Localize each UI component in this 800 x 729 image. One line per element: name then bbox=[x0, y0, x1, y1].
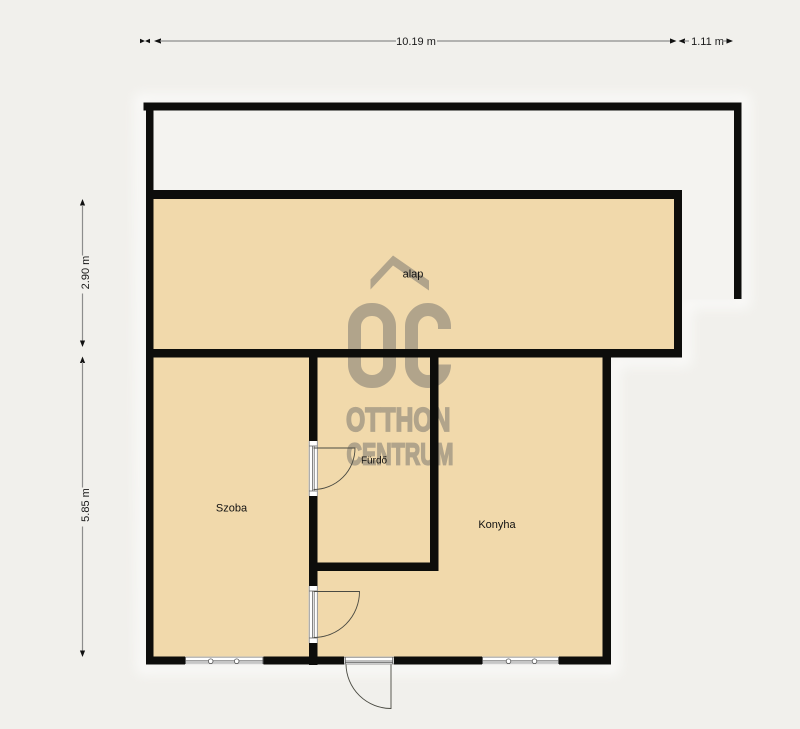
svg-text:5.85 m: 5.85 m bbox=[80, 488, 92, 522]
svg-text:10.19 m: 10.19 m bbox=[396, 36, 436, 48]
svg-text:1.11 m: 1.11 m bbox=[691, 36, 724, 48]
svg-text:Fürdő: Fürdő bbox=[361, 456, 388, 467]
svg-text:Szoba: Szoba bbox=[216, 503, 248, 515]
svg-text:2.90 m: 2.90 m bbox=[80, 256, 92, 290]
svg-text:alap: alap bbox=[403, 268, 424, 280]
svg-text:Konyha: Konyha bbox=[478, 519, 516, 531]
